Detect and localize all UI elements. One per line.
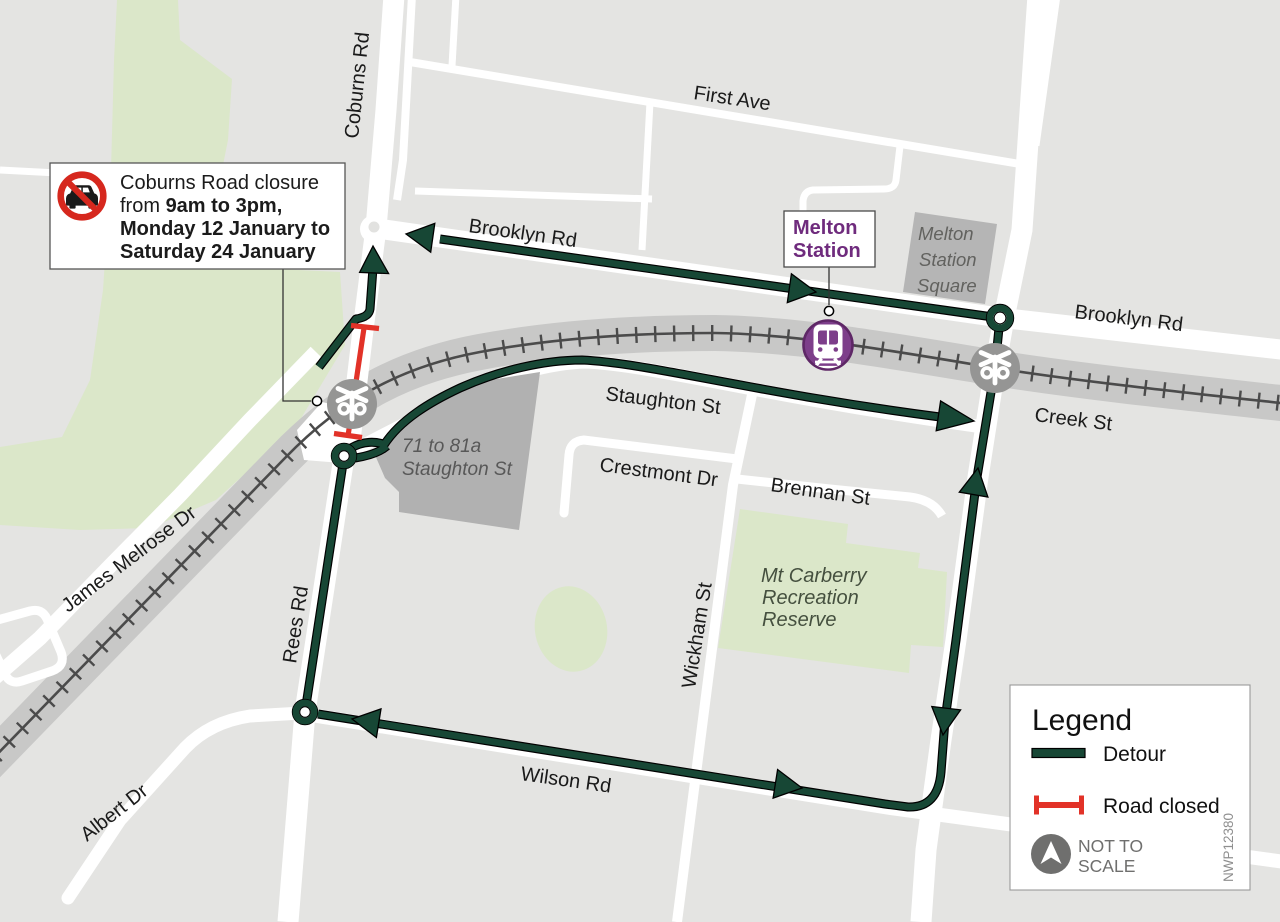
svg-text:Station: Station — [919, 249, 977, 270]
svg-text:Monday 12 January to: Monday 12 January to — [120, 218, 330, 240]
svg-text:Staughton St: Staughton St — [402, 459, 513, 480]
svg-text:NWP12380: NWP12380 — [1221, 813, 1236, 882]
svg-text:Recreation: Recreation — [762, 587, 859, 609]
svg-text:SCALE: SCALE — [1078, 856, 1135, 876]
svg-text:Station: Station — [793, 240, 861, 262]
svg-text:Coburns Road closure: Coburns Road closure — [120, 172, 319, 194]
svg-text:Melton: Melton — [918, 223, 974, 244]
svg-text:Saturday 24 January: Saturday 24 January — [120, 241, 317, 263]
svg-text:NOT TO: NOT TO — [1078, 836, 1143, 856]
svg-text:Reserve: Reserve — [762, 609, 836, 631]
svg-text:Detour: Detour — [1103, 743, 1166, 766]
svg-text:71 to 81a: 71 to 81a — [402, 436, 481, 457]
svg-text:Melton: Melton — [793, 217, 857, 239]
svg-text:Legend: Legend — [1032, 704, 1132, 737]
svg-text:Square: Square — [917, 275, 977, 296]
svg-text:Mt Carberry: Mt Carberry — [761, 565, 868, 587]
svg-text:from 9am to 3pm,: from 9am to 3pm, — [120, 195, 282, 217]
svg-text:Road closed: Road closed — [1103, 795, 1220, 818]
